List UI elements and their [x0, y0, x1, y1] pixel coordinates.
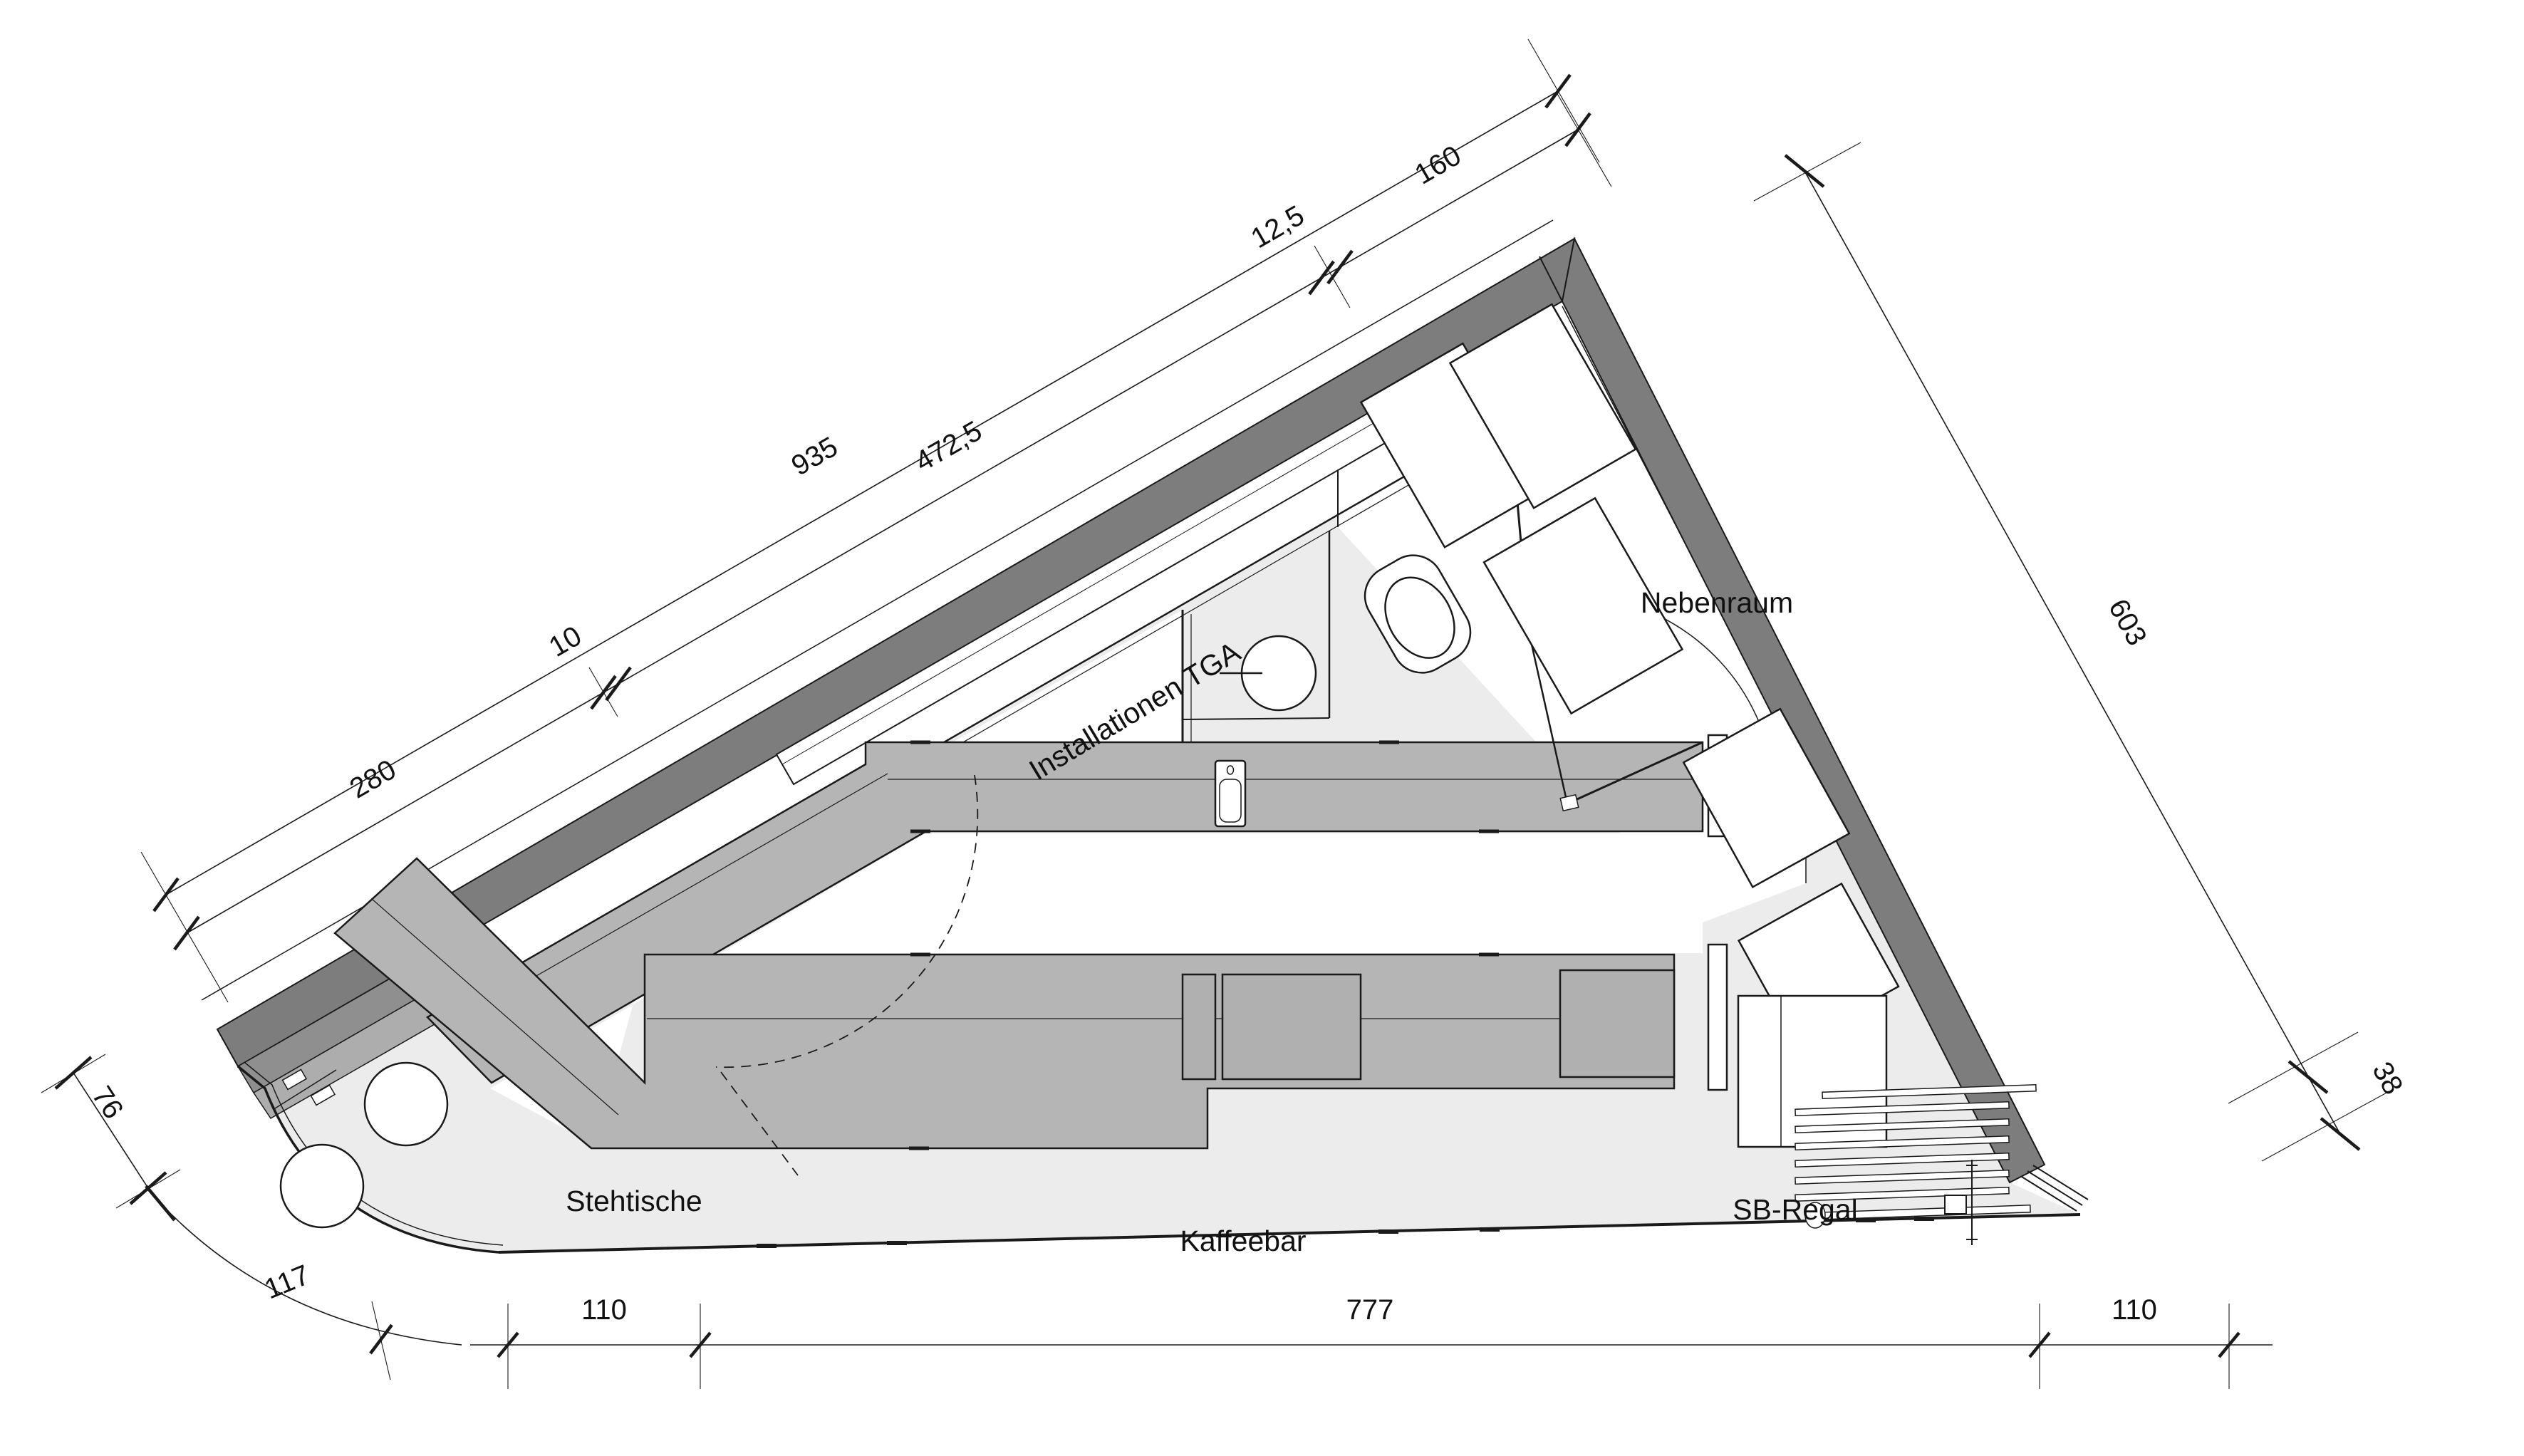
- equipment-right: [1560, 970, 1674, 1077]
- dim-label-117: 117: [260, 1259, 314, 1306]
- room-label-kaffeebar: Kaffeebar: [1180, 1224, 1306, 1257]
- dim-label-110-left: 110: [581, 1294, 627, 1326]
- dim-label-160: 160: [1410, 140, 1467, 190]
- equipment-espresso-machine: [1222, 974, 1361, 1079]
- standing-table-2: [365, 1063, 447, 1145]
- room-label-sb-regal: SB-Regal: [1733, 1193, 1857, 1226]
- dim-label-76: 76: [85, 1081, 129, 1124]
- dim-label-110-right: 110: [2112, 1294, 2157, 1326]
- equipment-small: [1183, 974, 1215, 1079]
- room-label-stehtische: Stehtische: [566, 1185, 702, 1217]
- room-label-nebenraum: Nebenraum: [1641, 586, 1793, 619]
- dim-label-472-5: 472,5: [910, 415, 987, 478]
- dim-label-603: 603: [2102, 594, 2153, 651]
- dim-label-38: 38: [2366, 1057, 2409, 1100]
- floor-plan-drawing: 935 280 10 472,5 12,5 160 603 38: [0, 0, 2524, 1456]
- dim-label-10: 10: [544, 620, 587, 663]
- dim-label-280: 280: [345, 754, 402, 804]
- counter-sink: [1215, 761, 1245, 826]
- dim-label-777: 777: [1346, 1294, 1394, 1326]
- standing-table-1: [281, 1145, 363, 1227]
- dim-label-12-5: 12,5: [1246, 199, 1309, 254]
- dim-label-935: 935: [786, 431, 843, 482]
- floor-plan-canvas: 935 280 10 472,5 12,5 160 603 38: [0, 0, 2524, 1456]
